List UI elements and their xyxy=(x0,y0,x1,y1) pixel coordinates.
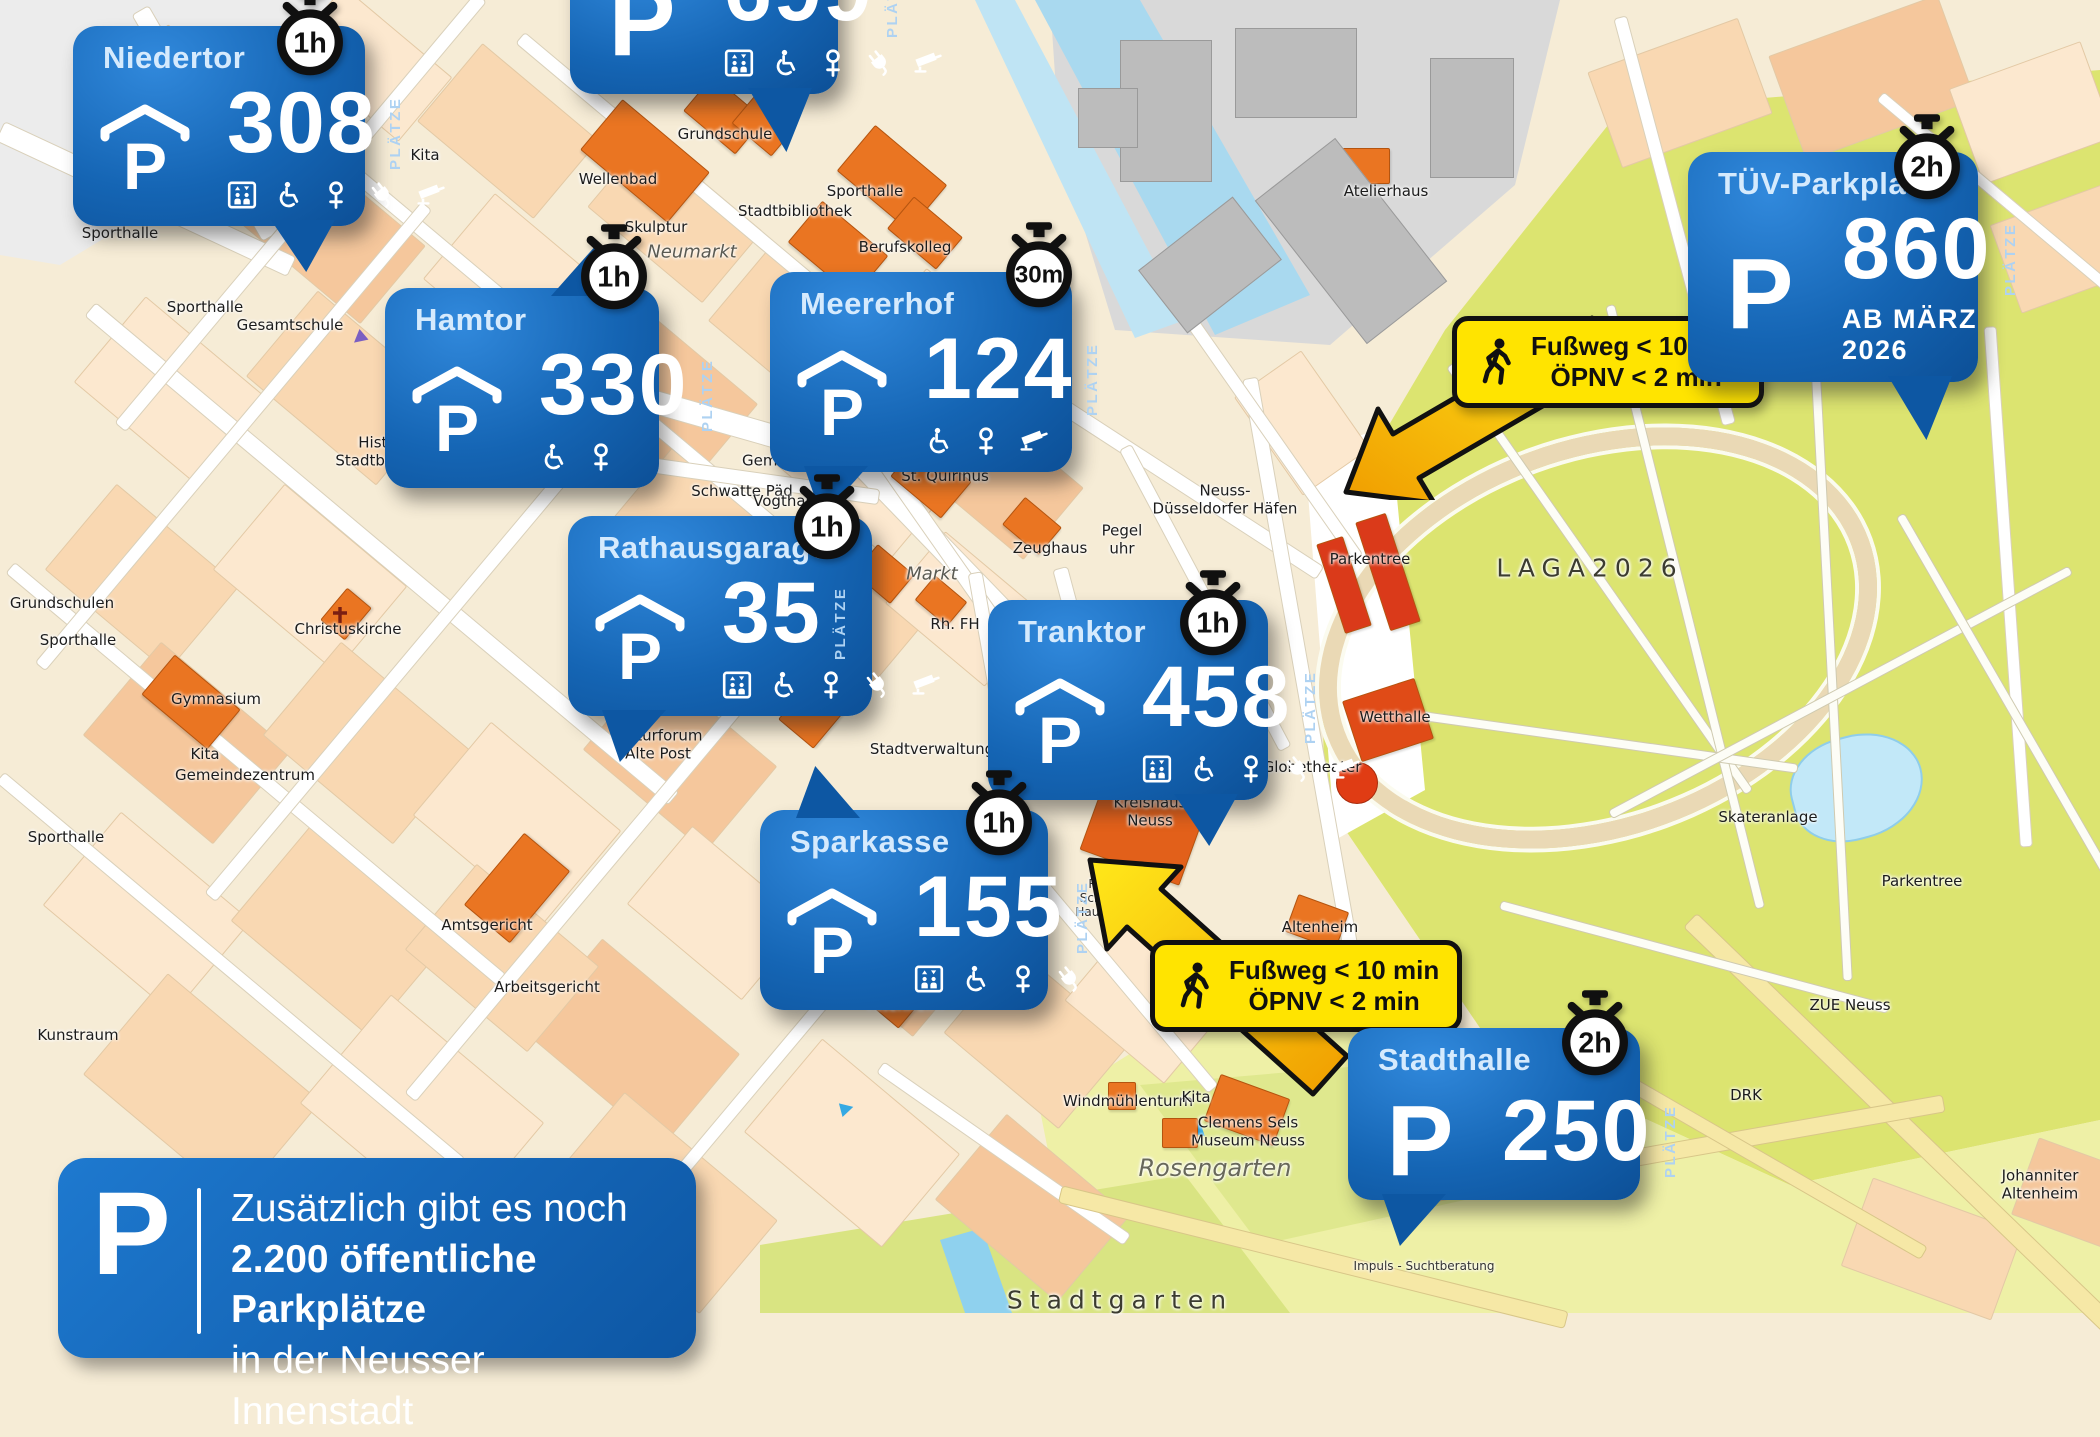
svg-text:P: P xyxy=(123,129,167,198)
ev-charging-icon xyxy=(1283,754,1313,784)
infobox-line: 2.200 öffentliche Parkplätze xyxy=(231,1235,670,1336)
women-parking-icon xyxy=(1008,964,1038,994)
plaetze-label: PLÄTZE xyxy=(1084,334,1101,416)
parking-count: 458 xyxy=(1142,658,1292,737)
svg-text:P: P xyxy=(435,391,479,460)
time-limit-badge: 2h xyxy=(1556,990,1634,1076)
map-label: Stadtverwaltung xyxy=(870,741,994,759)
svg-text:1h: 1h xyxy=(293,28,327,60)
svg-text:P: P xyxy=(1038,703,1082,772)
map-label: Pegel uhr xyxy=(1102,522,1143,557)
parking-callout-meererhof[interactable]: MeererhofP124PLÄTZE30m xyxy=(770,272,1072,472)
wheelchair-icon xyxy=(274,180,304,210)
parking-count: 308 xyxy=(227,84,377,163)
plaetze-label: PLÄTZE xyxy=(2002,214,2019,296)
covered-parking-icon: P xyxy=(97,96,193,198)
map-label: Clemens Sels Museum Neuss xyxy=(1191,1114,1305,1149)
map-label: Berufskolleg xyxy=(859,239,952,257)
women-parking-icon xyxy=(818,48,848,78)
plaetze-label: PLÄTZE xyxy=(387,88,404,170)
map-label: Sporthalle xyxy=(28,829,105,847)
cctv-icon xyxy=(910,670,940,700)
map-label: LAGA2026 xyxy=(1496,553,1683,583)
wheelchair-icon xyxy=(924,426,954,456)
covered-parking-icon: P xyxy=(409,358,505,460)
map-label: Kita xyxy=(190,746,219,764)
pedestrian-icon xyxy=(1475,337,1519,387)
svg-text:P: P xyxy=(1388,1086,1452,1184)
walk-note-line: Fußweg < 10 min xyxy=(1229,955,1439,986)
ev-charging-icon xyxy=(368,180,398,210)
walk-note-line: ÖPNV < 2 min xyxy=(1248,986,1419,1017)
map-label: Amtsgericht xyxy=(441,917,532,935)
ev-charging-icon xyxy=(863,670,893,700)
parking-callout-unnamed-top[interactable]: P699PLÄTZE xyxy=(570,0,838,94)
parking-callout-stadthalle[interactable]: StadthalleP250PLÄTZE2h xyxy=(1348,1028,1640,1200)
women-parking-icon xyxy=(586,442,616,472)
map-label: Stadtgarten xyxy=(1007,1285,1233,1315)
parking-icon: P xyxy=(1712,239,1808,337)
map-label: Stadtbibliothek xyxy=(738,203,852,221)
wheelchair-icon xyxy=(769,670,799,700)
svg-text:30m: 30m xyxy=(1015,262,1063,289)
map-block xyxy=(213,484,408,673)
wheelchair-icon xyxy=(961,964,991,994)
map-label: Parkentree xyxy=(1330,551,1411,569)
pedestrian-icon xyxy=(1173,961,1217,1011)
map-label: Sporthalle xyxy=(82,225,159,243)
map-label: Neuss- Düsseldorfer Häfen xyxy=(1153,482,1298,517)
map-label: ZUE Neuss xyxy=(1809,997,1890,1015)
parking-callout-tuev-parkplatz[interactable]: TÜV-ParkplatzP860PLÄTZEAB MÄRZ 20262h xyxy=(1688,152,1978,382)
map-label: Sporthalle xyxy=(40,632,117,650)
women-parking-icon xyxy=(321,180,351,210)
svg-text:2h: 2h xyxy=(1578,1028,1612,1060)
svg-text:P: P xyxy=(618,619,662,688)
svg-text:P: P xyxy=(810,913,854,982)
women-parking-icon xyxy=(971,426,1001,456)
svg-text:1h: 1h xyxy=(1196,608,1230,640)
time-limit-badge: 1h xyxy=(575,224,653,310)
plaetze-label: PLÄTZE xyxy=(1662,1096,1679,1178)
parking-count: 699 xyxy=(724,0,874,31)
elevator-icon xyxy=(1142,754,1172,784)
covered-parking-icon: P xyxy=(784,880,880,982)
map-label: Grundschulen xyxy=(10,595,114,613)
svg-text:1h: 1h xyxy=(597,262,631,294)
covered-parking-icon: P xyxy=(592,586,688,688)
map-label: Johanniter Altenheim xyxy=(2002,1167,2079,1202)
map-label: Skateranlage xyxy=(1718,809,1817,827)
map-building-industrial xyxy=(1430,58,1514,178)
parking-icon: P xyxy=(92,1184,171,1285)
time-limit-badge: 2h xyxy=(1888,114,1966,200)
parking-count: 250 xyxy=(1502,1092,1652,1171)
additional-parking-infobox: P Zusätzlich gibt es noch 2.200 öffentli… xyxy=(58,1158,696,1358)
map-label: Parkentree xyxy=(1882,873,1963,891)
time-limit-badge: 1h xyxy=(1174,570,1252,656)
walk-time-note: Fußweg < 10 minÖPNV < 2 min xyxy=(1150,940,1462,1032)
women-parking-icon xyxy=(816,670,846,700)
map-label: Wetthalle xyxy=(1359,709,1430,727)
parking-count: 35 xyxy=(722,574,822,653)
cctv-icon xyxy=(1330,754,1360,784)
svg-text:P: P xyxy=(1728,239,1792,337)
plaetze-label: PLÄTZE xyxy=(832,578,849,660)
map-label: Wellenbad xyxy=(579,171,658,189)
wheelchair-icon xyxy=(1189,754,1219,784)
elevator-icon xyxy=(914,964,944,994)
infobox-line: Zusätzlich gibt es noch xyxy=(231,1184,670,1235)
svg-text:1h: 1h xyxy=(982,808,1016,840)
map-label: Sporthalle xyxy=(167,299,244,317)
time-limit-badge: 1h xyxy=(960,770,1038,856)
parking-icon: P xyxy=(1372,1086,1468,1184)
elevator-icon xyxy=(724,48,754,78)
wheelchair-icon xyxy=(539,442,569,472)
map-label: Gymnasium xyxy=(171,691,261,709)
ev-charging-icon xyxy=(865,48,895,78)
map-label: Impuls - Suchtberatung xyxy=(1354,1259,1495,1273)
parking-callout-hamtor[interactable]: HamtorP330PLÄTZE1h xyxy=(385,288,659,488)
map-building-industrial xyxy=(1235,28,1357,118)
parking-count: 860 xyxy=(1842,210,1992,289)
cctv-icon xyxy=(1018,426,1048,456)
elevator-icon xyxy=(227,180,257,210)
map-label: Atelierhaus xyxy=(1344,183,1429,201)
parking-callout-niedertor[interactable]: NiedertorP308PLÄTZE1h xyxy=(73,26,365,226)
svg-text:P: P xyxy=(820,375,864,444)
svg-text:P: P xyxy=(610,0,674,64)
wheelchair-icon xyxy=(771,48,801,78)
covered-parking-icon: P xyxy=(794,342,890,444)
map-building-industrial xyxy=(1078,88,1138,148)
divider xyxy=(197,1188,201,1334)
time-limit-badge: 30m xyxy=(1000,222,1078,308)
ev-charging-icon xyxy=(1055,964,1085,994)
map-label: Sporthalle xyxy=(827,183,904,201)
cctv-icon xyxy=(415,180,445,210)
svg-text:1h: 1h xyxy=(810,512,844,544)
covered-parking-icon: P xyxy=(1012,670,1108,772)
parking-count: 330 xyxy=(539,346,689,425)
cctv-icon xyxy=(912,48,942,78)
svg-text:2h: 2h xyxy=(1910,152,1944,184)
map-block xyxy=(744,1038,960,1247)
map-label: Gemeindezentrum xyxy=(175,767,315,785)
women-parking-icon xyxy=(1236,754,1266,784)
map-label: Zeughaus xyxy=(1013,540,1088,558)
map-label: Rosengarten xyxy=(1138,1154,1291,1182)
parking-icon: P xyxy=(594,0,690,64)
parking-count: 155 xyxy=(914,868,1064,947)
elevator-icon xyxy=(722,670,752,700)
map-label: Grundschule xyxy=(678,126,773,144)
plaetze-label: PLÄTZE xyxy=(1074,872,1091,954)
map-label: Gesamtschule xyxy=(237,317,344,335)
map-label: Arbeitsgericht xyxy=(494,979,600,997)
infobox-line: in der Neusser Innenstadt xyxy=(231,1336,670,1437)
plaetze-label: PLÄTZE xyxy=(699,350,716,432)
parking-callout-sparkasse[interactable]: SparkasseP155PLÄTZE1h xyxy=(760,810,1048,1010)
plaetze-label: PLÄTZE xyxy=(1302,662,1319,744)
callout-note: AB MÄRZ 2026 xyxy=(1842,304,2019,366)
map-label: DRK xyxy=(1730,1087,1762,1105)
map-label: Kunstraum xyxy=(37,1027,118,1045)
time-limit-badge: 1h xyxy=(788,474,866,560)
time-limit-badge: 1h xyxy=(271,0,349,76)
parking-count: 124 xyxy=(924,330,1074,409)
plaetze-label: PLÄTZE xyxy=(884,0,901,38)
map-label: Neumarkt xyxy=(647,241,736,262)
map-label: Christuskirche xyxy=(294,621,401,639)
parking-callout-rathausgarage[interactable]: RathausgarageP35PLÄTZE1h xyxy=(568,516,872,716)
